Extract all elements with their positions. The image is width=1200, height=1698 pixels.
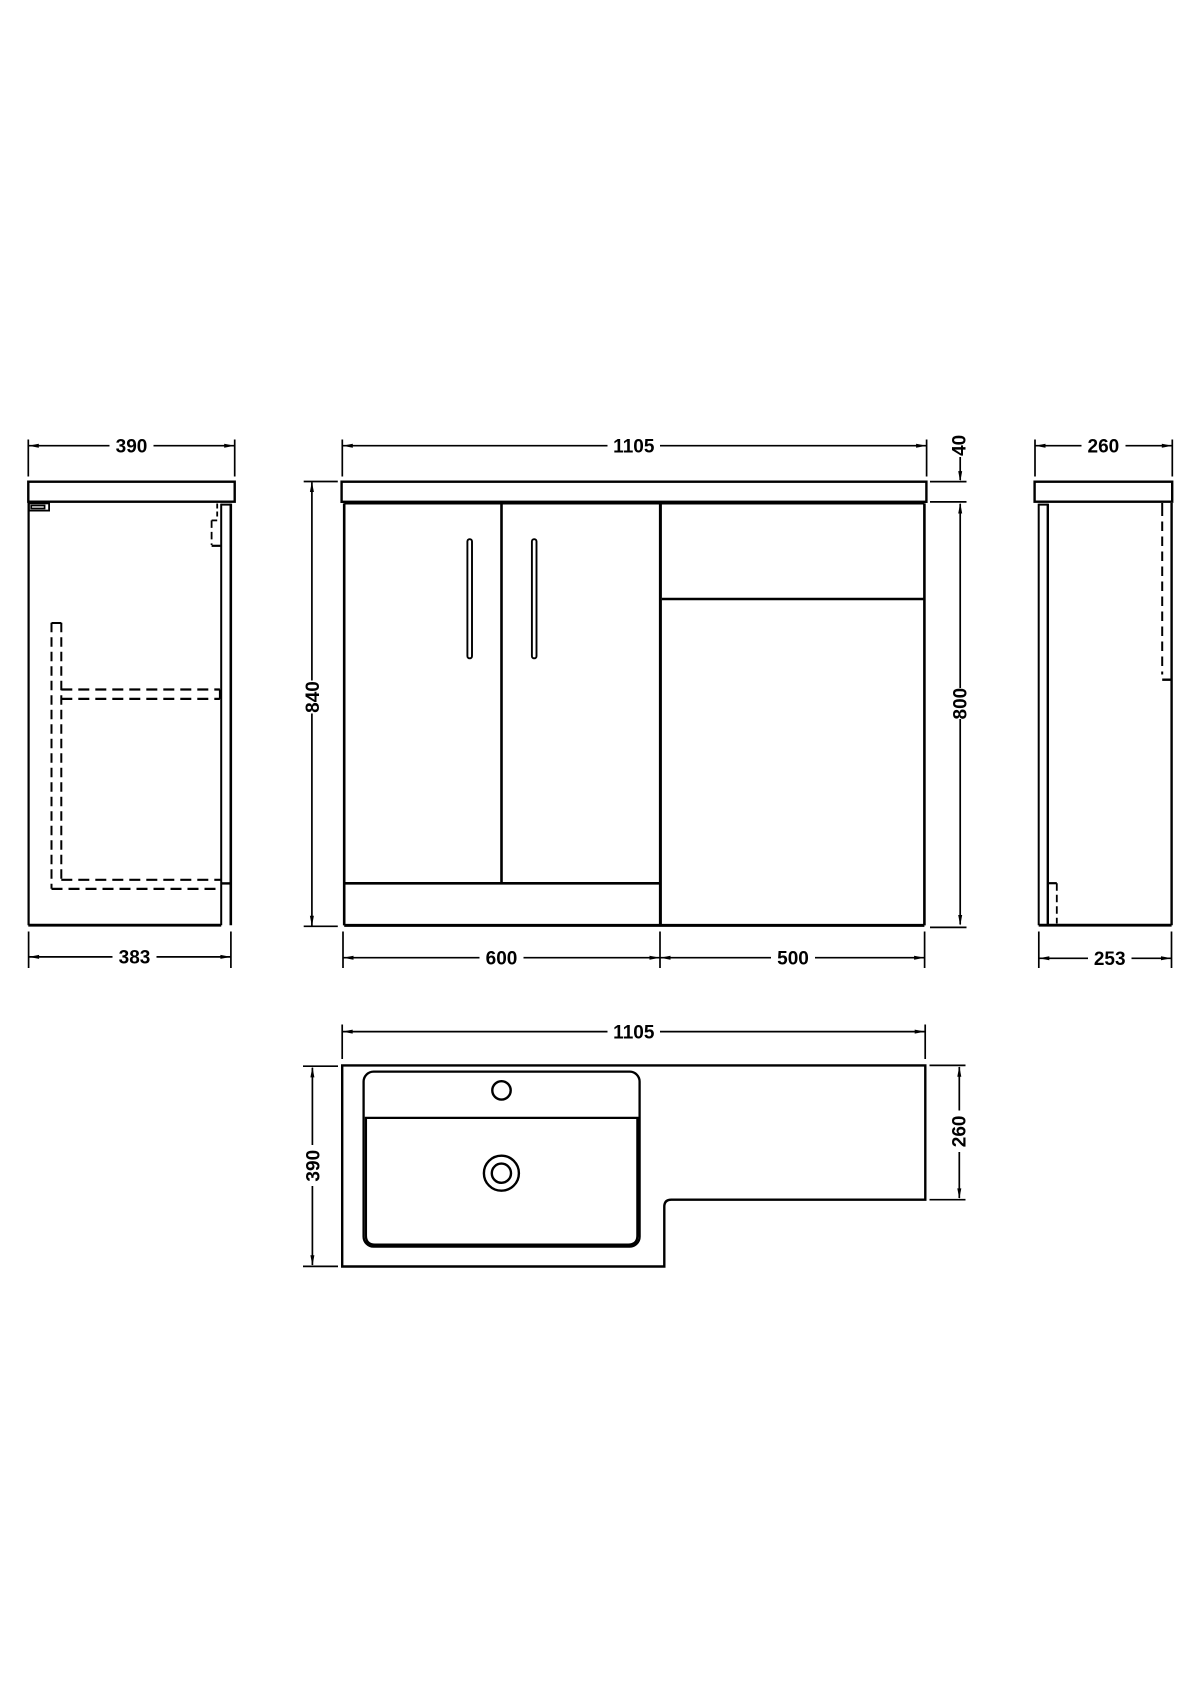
- svg-text:1105: 1105: [613, 437, 655, 458]
- svg-text:390: 390: [303, 1150, 324, 1182]
- svg-text:1105: 1105: [613, 1022, 655, 1043]
- svg-text:253: 253: [1094, 949, 1126, 970]
- svg-text:40: 40: [950, 435, 971, 456]
- svg-text:260: 260: [1088, 437, 1120, 458]
- svg-text:390: 390: [116, 437, 148, 458]
- svg-text:840: 840: [303, 681, 324, 713]
- svg-text:260: 260: [950, 1116, 971, 1148]
- svg-text:800: 800: [951, 688, 972, 720]
- svg-text:383: 383: [119, 948, 151, 969]
- svg-text:600: 600: [486, 949, 518, 970]
- svg-text:500: 500: [777, 949, 809, 970]
